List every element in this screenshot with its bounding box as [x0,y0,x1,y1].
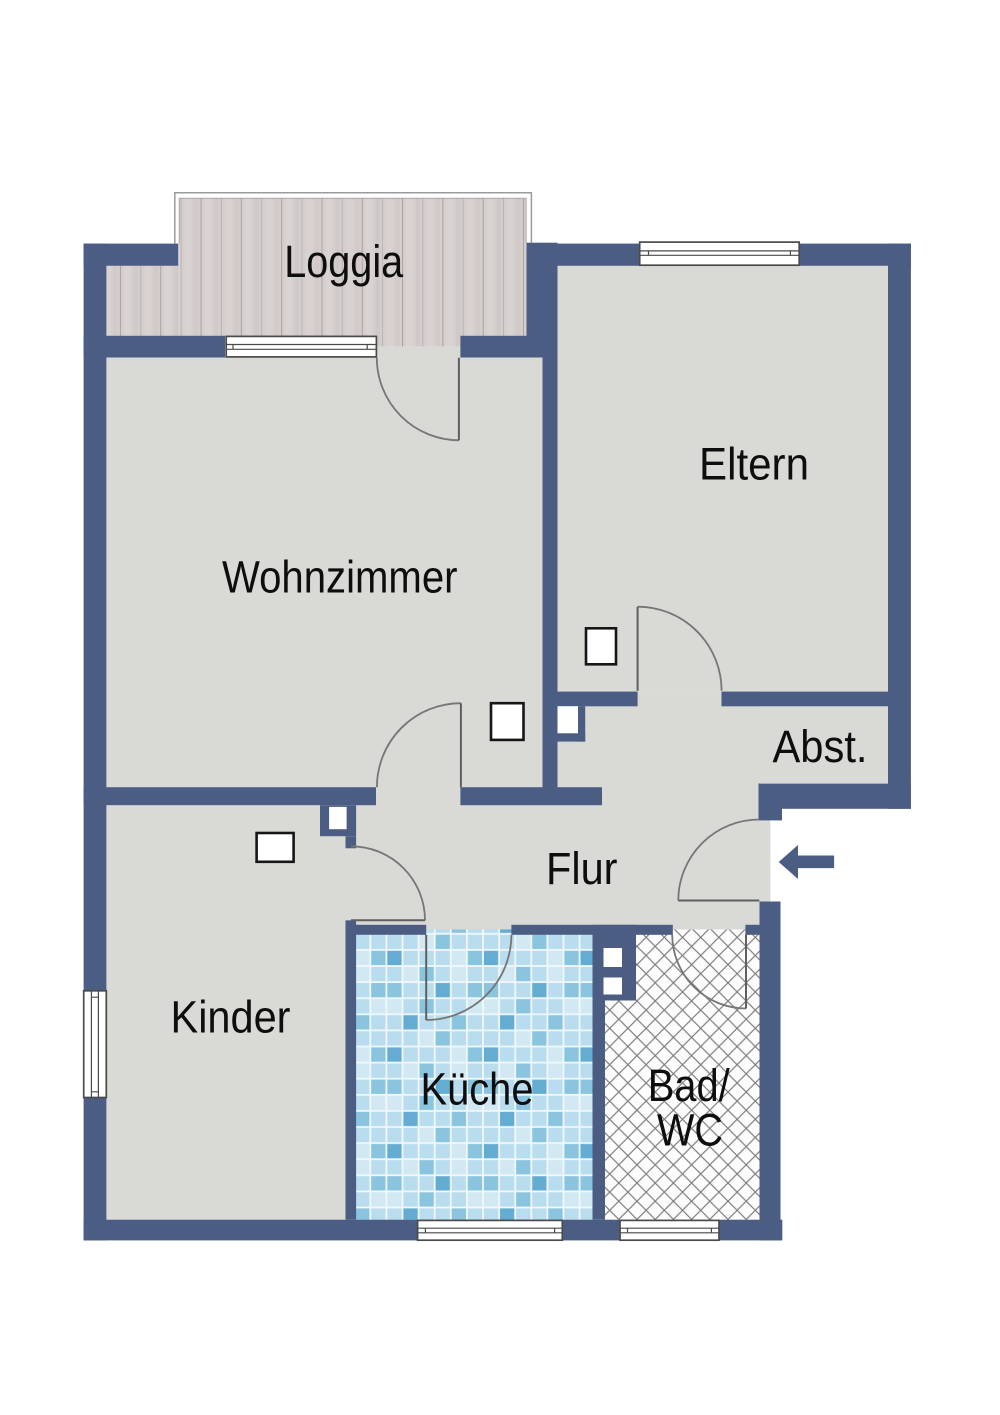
svg-text:Flur: Flur [546,843,618,894]
svg-text:Wohnzimmer: Wohnzimmer [222,552,458,603]
svg-text:Eltern: Eltern [699,439,809,490]
svg-text:Kinder: Kinder [171,992,291,1043]
svg-text:Küche: Küche [421,1063,534,1114]
svg-text:WC: WC [657,1104,723,1155]
svg-text:Loggia: Loggia [284,236,404,287]
svg-text:Abst.: Abst. [773,721,868,772]
